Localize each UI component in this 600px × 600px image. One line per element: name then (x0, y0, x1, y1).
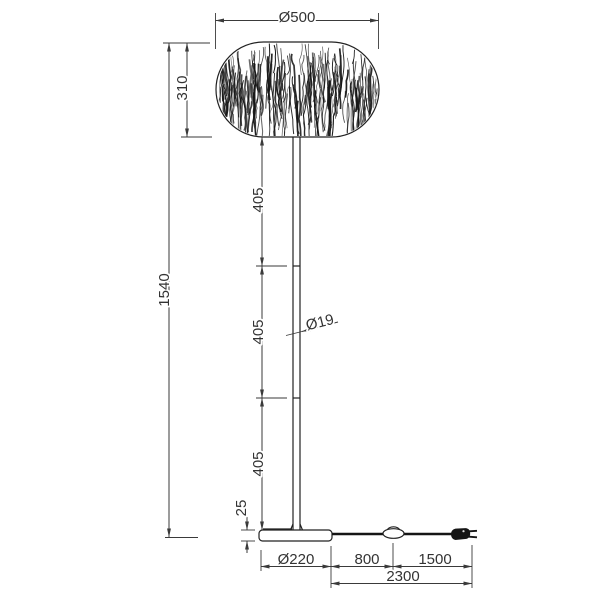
dim-label-total-height: 1540 (156, 273, 173, 306)
dim-label-pole-segment-upper: 405 (250, 187, 267, 212)
dim-cord-800: 800 (331, 543, 393, 571)
power-plug (451, 527, 477, 540)
dim-base-height: 25 (233, 500, 255, 553)
dim-label-pole-segment-middle: 405 (250, 319, 267, 344)
dim-label-base-diameter: Ø220 (278, 551, 315, 568)
lampshade (216, 42, 382, 181)
dim-pole-diameter-leader: Ø19 (286, 311, 338, 336)
dim-label-base-height: 25 (233, 500, 250, 517)
dim-label-base-to-switch: 800 (354, 551, 379, 568)
dim-label-shade-height: 310 (174, 75, 191, 100)
floor-lamp-drawing: Ø500 310 1540 405 405 405 Ø19 25 (0, 0, 600, 600)
dim-label-pole-diameter: Ø19 (304, 311, 336, 334)
dim-label-shade-diameter: Ø500 (279, 9, 316, 26)
dim-total-height: 1540 (156, 43, 198, 538)
dim-label-pole-segment-lower: 405 (250, 451, 267, 476)
dim-cord-2300: 2300 (331, 568, 472, 585)
dim-label-switch-to-plug: 1500 (418, 551, 451, 568)
pole-foot-flare (291, 524, 303, 530)
lamp-base (259, 529, 332, 541)
inline-switch (383, 527, 404, 538)
dim-shade-height: 310 (163, 43, 212, 137)
dim-label-cord-overall: 2300 (386, 568, 419, 585)
technical-drawing-canvas: Ø500 310 1540 405 405 405 Ø19 25 (0, 0, 600, 600)
dim-pole-segments: 405 405 405 (250, 137, 287, 530)
dim-base-diameter: Ø220 (261, 546, 331, 588)
